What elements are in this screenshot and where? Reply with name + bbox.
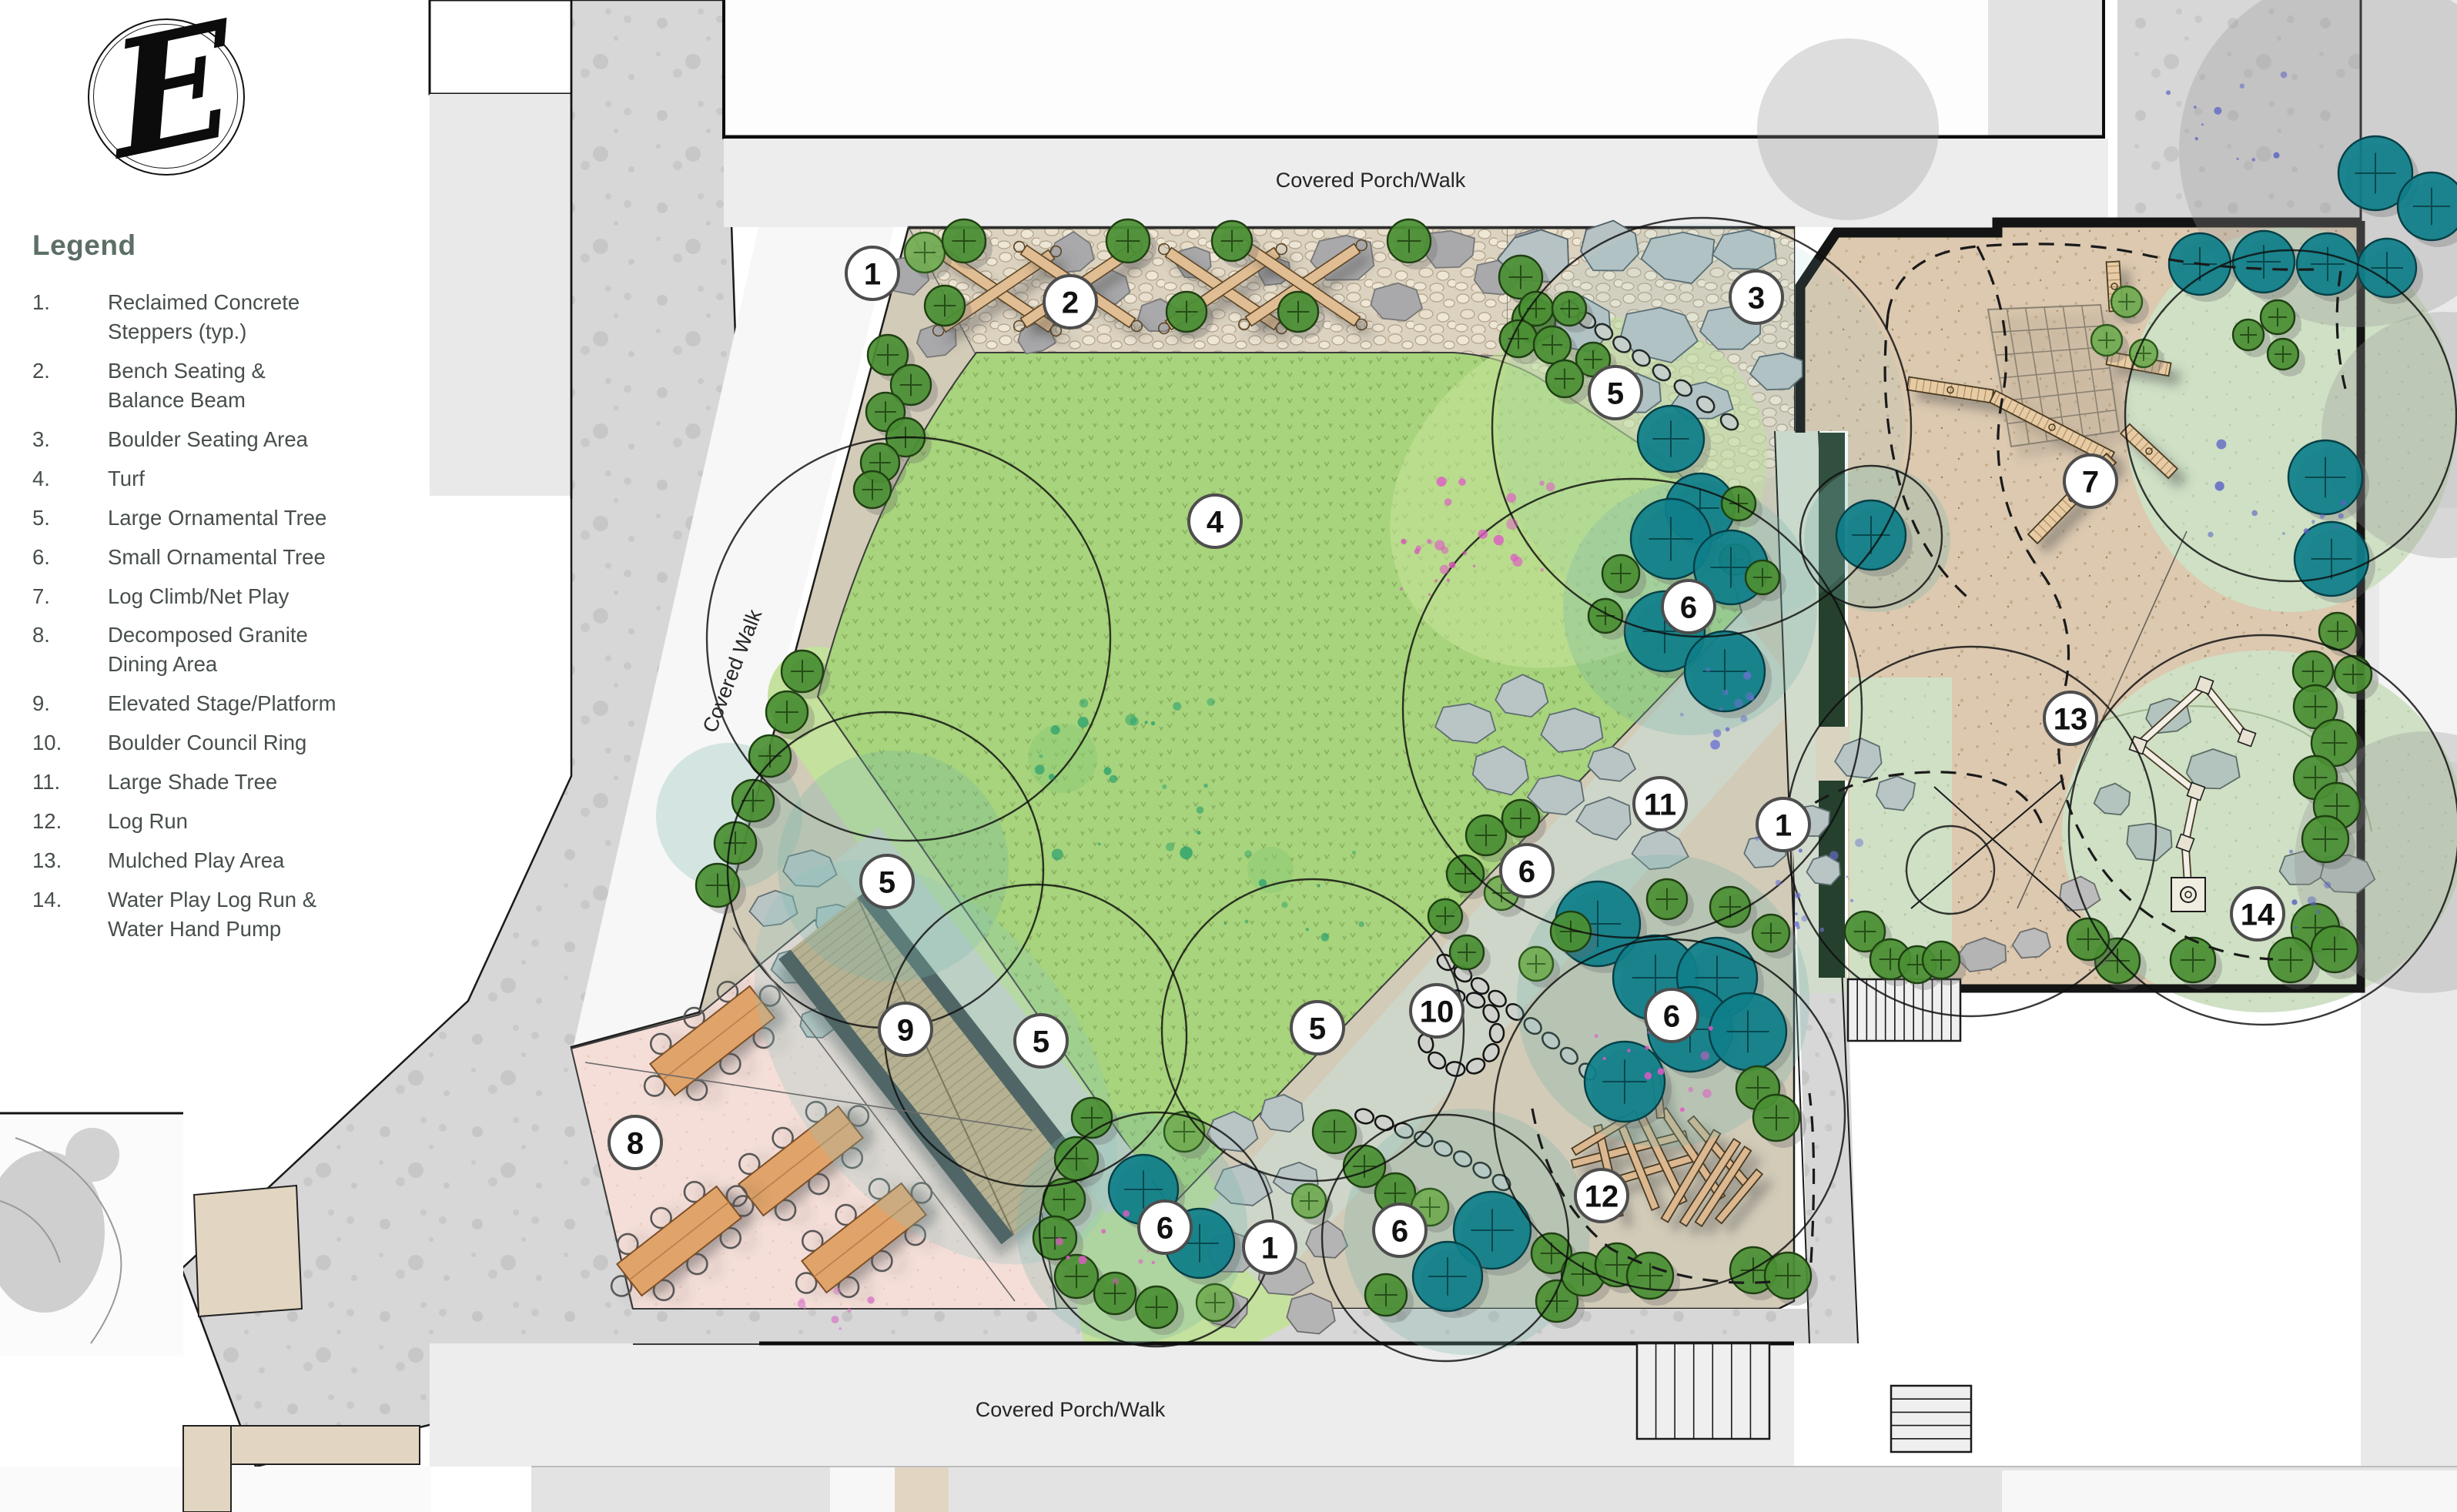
plan-marker-5: 5 <box>1589 366 1642 419</box>
svg-text:14: 14 <box>2241 898 2275 932</box>
legend-item-label: Decomposed GraniteDining Area <box>108 621 308 679</box>
legend-item-label: Mulched Play Area <box>108 846 284 875</box>
plan-marker-6: 6 <box>1662 580 1715 633</box>
legend-item-9: 9.Elevated Stage/Platform <box>32 689 448 718</box>
svg-text:1: 1 <box>1775 808 1792 842</box>
brand-logo: E <box>88 8 246 189</box>
plan-marker-2: 2 <box>1044 276 1096 328</box>
legend-item-14: 14.Water Play Log Run &Water Hand Pump <box>32 885 448 944</box>
plan-marker-6: 6 <box>1139 1201 1191 1253</box>
svg-text:6: 6 <box>1391 1214 1408 1248</box>
legend-item-number: 9. <box>32 689 108 718</box>
legend-item-7: 7.Log Climb/Net Play <box>32 582 448 611</box>
svg-text:6: 6 <box>1663 999 1680 1033</box>
plan-marker-9: 9 <box>879 1003 932 1055</box>
legend-item-3: 3.Boulder Seating Area <box>32 425 448 454</box>
plan-marker-13: 13 <box>2044 692 2097 744</box>
svg-text:5: 5 <box>1607 376 1624 410</box>
legend-item-number: 8. <box>32 621 108 679</box>
plan-marker-8: 8 <box>609 1116 661 1169</box>
plan-marker-3: 3 <box>1730 271 1782 323</box>
svg-text:1: 1 <box>1261 1231 1278 1265</box>
svg-text:3: 3 <box>1748 281 1765 315</box>
bottom-porch-label: Covered Porch/Walk <box>976 1398 1166 1421</box>
logo-letter: E <box>102 0 243 196</box>
legend-item-label: Reclaimed ConcreteSteppers (typ.) <box>108 288 300 346</box>
legend-item-number: 4. <box>32 464 108 493</box>
legend-item-label: Boulder Seating Area <box>108 425 308 454</box>
legend-item-11: 11.Large Shade Tree <box>32 768 448 797</box>
top-porch-label: Covered Porch/Walk <box>1276 169 1466 192</box>
plan-marker-7: 7 <box>2064 455 2117 507</box>
legend-item-number: 13. <box>32 846 108 875</box>
svg-text:10: 10 <box>1420 995 1454 1029</box>
legend-item-12: 12.Log Run <box>32 807 448 836</box>
legend-item-number: 5. <box>32 503 108 533</box>
legend-item-number: 12. <box>32 807 108 836</box>
legend-item-label: Large Ornamental Tree <box>108 503 326 533</box>
legend-item-10: 10.Boulder Council Ring <box>32 728 448 758</box>
plan-marker-1: 1 <box>1757 798 1809 851</box>
svg-text:8: 8 <box>627 1126 644 1160</box>
plan-marker-6: 6 <box>1645 989 1698 1042</box>
legend-item-number: 2. <box>32 356 108 415</box>
plan-marker-12: 12 <box>1575 1169 1628 1222</box>
legend-list: 1.Reclaimed ConcreteSteppers (typ.)2.Ben… <box>32 288 448 944</box>
plan-marker-14: 14 <box>2231 888 2284 940</box>
svg-text:5: 5 <box>879 865 895 899</box>
stairs <box>1891 1386 1971 1452</box>
legend-item-number: 10. <box>32 728 108 758</box>
legend-item-label: Turf <box>108 464 145 493</box>
legend-item-8: 8.Decomposed GraniteDining Area <box>32 621 448 679</box>
plan-marker-5: 5 <box>1015 1015 1067 1067</box>
svg-text:2: 2 <box>1062 286 1079 319</box>
legend-item-number: 6. <box>32 543 108 572</box>
plan-marker-10: 10 <box>1411 985 1463 1037</box>
water-hand-pump <box>2171 878 2205 912</box>
legend-item-5: 5.Large Ornamental Tree <box>32 503 448 533</box>
legend-title: Legend <box>32 229 448 262</box>
plan-marker-5: 5 <box>1291 1002 1344 1054</box>
plan-marker-6: 6 <box>1374 1204 1426 1256</box>
svg-text:1: 1 <box>864 257 881 291</box>
stairs <box>1848 979 1960 1041</box>
legend-item-label: Boulder Council Ring <box>108 728 306 758</box>
svg-text:6: 6 <box>1157 1211 1173 1245</box>
legend-item-1: 1.Reclaimed ConcreteSteppers (typ.) <box>32 288 448 346</box>
plan-marker-11: 11 <box>1634 778 1686 830</box>
svg-text:12: 12 <box>1585 1179 1619 1213</box>
legend-item-label: Bench Seating &Balance Beam <box>108 356 266 415</box>
plan-marker-1: 1 <box>846 247 899 299</box>
plan-marker-4: 4 <box>1189 495 1241 547</box>
svg-text:13: 13 <box>2054 702 2088 736</box>
svg-text:11: 11 <box>1644 788 1676 821</box>
legend-item-label: Large Shade Tree <box>108 768 277 797</box>
legend-item-label: Elevated Stage/Platform <box>108 689 336 718</box>
legend-item-number: 14. <box>32 885 108 944</box>
plan-marker-6: 6 <box>1501 845 1553 897</box>
legend-item-number: 1. <box>32 288 108 346</box>
svg-text:5: 5 <box>1309 1012 1326 1045</box>
legend-panel: E Legend 1.Reclaimed ConcreteSteppers (t… <box>32 8 448 954</box>
plan-marker-5: 5 <box>861 855 913 908</box>
legend-item-6: 6.Small Ornamental Tree <box>32 543 448 572</box>
legend-item-number: 3. <box>32 425 108 454</box>
svg-text:6: 6 <box>1680 590 1697 624</box>
legend-item-label: Water Play Log Run &Water Hand Pump <box>108 885 316 944</box>
legend-item-13: 13.Mulched Play Area <box>32 846 448 875</box>
legend-item-2: 2.Bench Seating &Balance Beam <box>32 356 448 415</box>
svg-text:4: 4 <box>1207 505 1224 539</box>
legend-item-4: 4.Turf <box>32 464 448 493</box>
plan-marker-1: 1 <box>1244 1221 1296 1273</box>
svg-text:5: 5 <box>1033 1025 1049 1059</box>
legend-item-number: 7. <box>32 582 108 611</box>
svg-text:9: 9 <box>897 1013 914 1047</box>
svg-text:7: 7 <box>2082 465 2099 499</box>
legend-item-label: Log Run <box>108 807 188 836</box>
stairs <box>1637 1343 1769 1439</box>
legend-item-number: 11. <box>32 768 108 797</box>
legend-item-label: Log Climb/Net Play <box>108 582 289 611</box>
svg-text:6: 6 <box>1518 855 1535 888</box>
legend-item-label: Small Ornamental Tree <box>108 543 326 572</box>
